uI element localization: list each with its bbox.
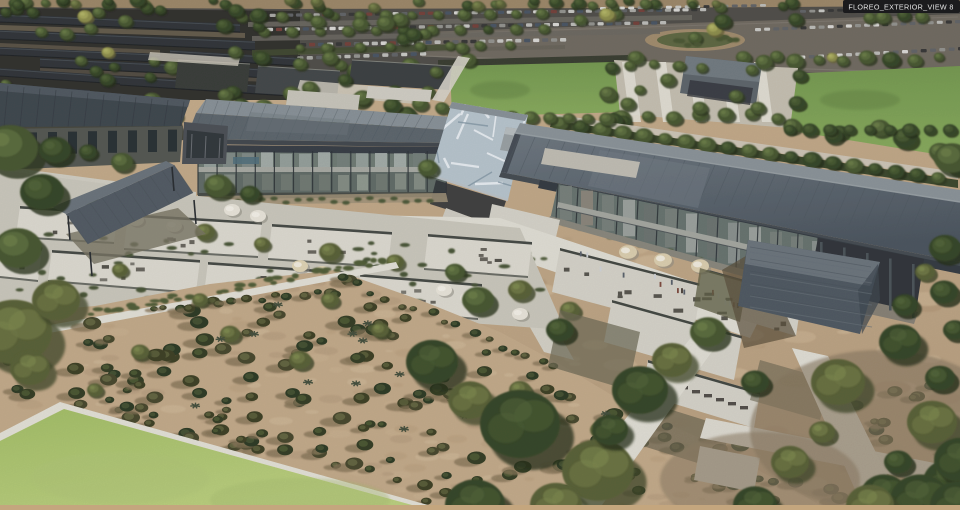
svg-text:FLOREO_EXTERIOR_VIEW 8: FLOREO_EXTERIOR_VIEW 8 xyxy=(848,3,953,12)
